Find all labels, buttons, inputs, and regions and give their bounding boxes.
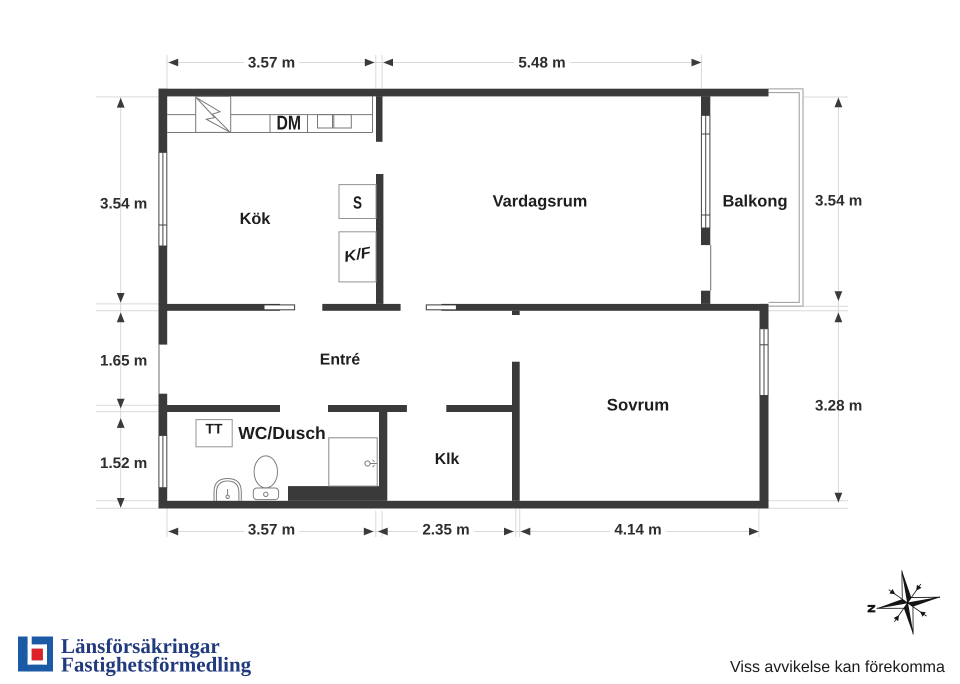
- svg-text:3.57 m: 3.57 m: [248, 522, 295, 539]
- svg-text:Klk: Klk: [435, 451, 460, 468]
- svg-text:Viss avvikelse kan förekomma: Viss avvikelse kan förekomma: [730, 659, 945, 676]
- svg-text:3.54 m: 3.54 m: [815, 192, 862, 209]
- svg-text:S: S: [353, 192, 362, 212]
- svg-text:4.14 m: 4.14 m: [614, 522, 661, 539]
- svg-text:DM: DM: [276, 112, 301, 134]
- svg-text:3.57 m: 3.57 m: [248, 55, 295, 72]
- svg-text:1.65 m: 1.65 m: [100, 353, 147, 370]
- svg-text:3.28 m: 3.28 m: [815, 397, 862, 414]
- svg-text:Sovrum: Sovrum: [607, 396, 669, 415]
- svg-text:2.35 m: 2.35 m: [422, 522, 469, 539]
- svg-text:WC/Dusch: WC/Dusch: [238, 423, 326, 443]
- svg-text:TT: TT: [206, 421, 223, 437]
- svg-text:Kök: Kök: [240, 210, 272, 228]
- svg-text:3.54 m: 3.54 m: [100, 196, 147, 213]
- svg-text:1.52 m: 1.52 m: [100, 455, 147, 472]
- svg-text:Balkong: Balkong: [722, 193, 787, 211]
- svg-text:5.48 m: 5.48 m: [518, 55, 565, 72]
- svg-text:Entré: Entré: [320, 351, 361, 368]
- svg-text:Fastighetsförmedling: Fastighetsförmedling: [61, 653, 252, 677]
- svg-text:Vardagsrum: Vardagsrum: [493, 193, 588, 211]
